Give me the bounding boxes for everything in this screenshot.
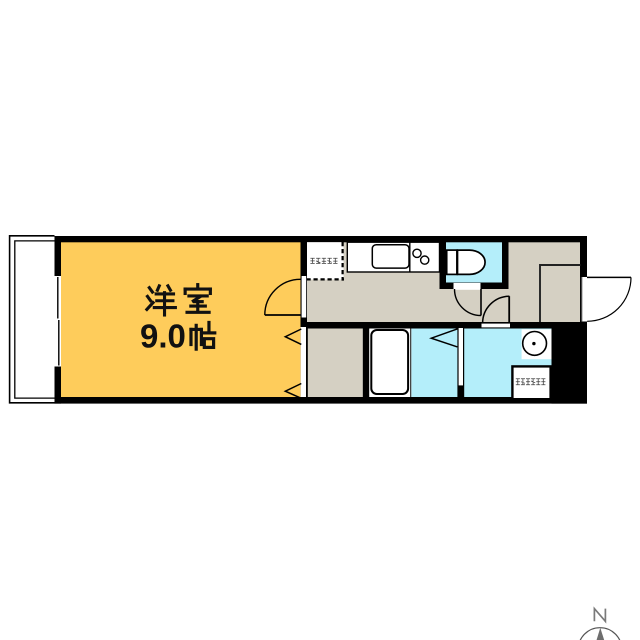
svg-text:9.0: 9.0 [140, 318, 186, 355]
